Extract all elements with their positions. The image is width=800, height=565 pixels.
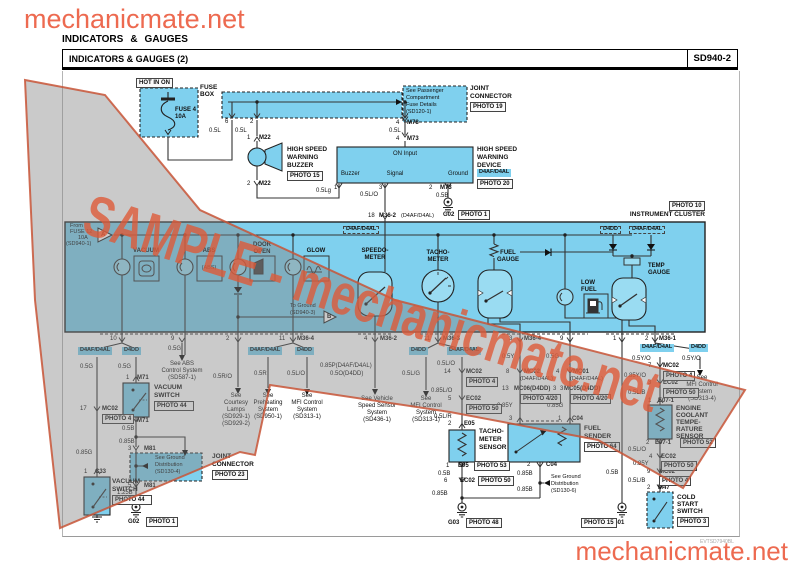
diagram-label: 0.5G — [80, 364, 93, 370]
diagram-label: (ABS) — [202, 266, 217, 272]
diagram-label: M36-2 — [379, 213, 396, 219]
diagram-label: Buzzer — [341, 171, 360, 177]
diagram-label: 8 — [506, 369, 509, 375]
variant-chip: D4AF/D4AL — [248, 347, 282, 355]
diagram-label: BOX — [200, 92, 214, 99]
diagram-label: VACUUM — [133, 248, 159, 254]
diagram-label: 0.5L — [235, 128, 247, 134]
diagram-label: BUZZER — [287, 163, 313, 170]
diagram-label: METER — [365, 255, 386, 261]
diagram-label: CONNECTOR — [212, 462, 254, 469]
diagram-label: 3 — [509, 336, 512, 342]
diagram-label: SWITCH — [677, 509, 703, 516]
diagram-label: M81 — [144, 483, 156, 489]
diagram-label: INSTRUMENT CLUSTER — [630, 212, 705, 219]
diagram-label: See — [697, 375, 708, 381]
diagram-label: M22 — [259, 181, 271, 187]
diagram-label: To Ground — [290, 304, 316, 310]
diagram-label: EC02 — [661, 454, 676, 460]
diagram-label: 9 — [560, 336, 563, 342]
diagram-label: 2 — [250, 119, 253, 125]
diagram-label: C33 — [95, 469, 106, 475]
diagram-label: SPEEDO- — [361, 248, 388, 254]
diagram-label: (SD940-1) — [66, 242, 91, 248]
diagram-label: 3 — [560, 386, 563, 392]
diagram-label: (D4AF/D4AL) — [401, 214, 434, 220]
diagram-label: GAUGE — [497, 257, 519, 263]
diagram-label: (SD950-1) — [254, 414, 282, 420]
diagram-label: 4 — [396, 136, 399, 142]
diagram-label: 3 — [379, 185, 382, 191]
diagram-label: 2 — [247, 181, 250, 187]
diagram-label: ON Input — [393, 151, 417, 157]
photo-ref: PHOTO 53 — [474, 461, 510, 471]
diagram-label: Preheating — [253, 400, 282, 406]
diagram-label: See Passenger — [406, 89, 444, 95]
diagram-label: 0.85Y/O — [624, 373, 646, 379]
diagram-label: 18 — [368, 213, 375, 219]
diagram-label: 0.85G — [76, 450, 92, 456]
diagram-label: WARNING — [477, 155, 508, 162]
diagram-label: SWITCH — [154, 393, 180, 400]
diagram-label: M71 — [137, 375, 149, 381]
diagram-label: 0.5L/R — [434, 414, 452, 420]
diagram-label: 0.5G — [118, 364, 131, 370]
diagram-label: 0.85B — [432, 491, 448, 497]
variant-chip: D4AF/D4AL — [343, 226, 379, 234]
photo-ref: PHOTO 4 — [466, 377, 498, 387]
diagram-label: 0.5B — [436, 193, 448, 199]
diagram-labels: FUSE 410AFUSEBOX620.5L0.5L1M222M22HIGH S… — [0, 0, 800, 565]
diagram-label: Speed Sensor — [358, 403, 396, 409]
diagram-label: FUEL — [584, 426, 601, 433]
diagram-label: 11 — [424, 336, 430, 342]
diagram-label: 0.85B — [517, 471, 533, 477]
diagram-label: B — [327, 314, 331, 320]
diagram-label: 0.5L — [209, 128, 221, 134]
diagram-label: FUEL — [581, 287, 597, 293]
diagram-label: (SD587-1) — [168, 375, 196, 381]
diagram-label: EC02 — [466, 396, 481, 402]
diagram-label: (SD130-4) — [155, 470, 180, 476]
diagram-label: OPEN — [253, 249, 270, 255]
diagram-label: 9 — [171, 336, 174, 342]
photo-ref: PHOTO 4 — [659, 476, 691, 486]
diagram-label: TACHO- — [427, 250, 450, 256]
diagram-label: 0.5G — [546, 354, 559, 360]
diagram-label: 0.85P(D4AF/D4AL) — [320, 363, 372, 369]
diagram-label: JOINT — [212, 454, 231, 461]
variant-chip: D4AF/D4AL — [477, 169, 511, 177]
diagram-label: 4 — [556, 369, 559, 375]
photo-ref: PHOTO 4 — [663, 371, 695, 381]
diagram-label: 6 — [225, 119, 228, 125]
photo-ref: PHOTO 4/20 — [570, 394, 611, 404]
photo-ref: PHOTO 44 — [112, 495, 152, 505]
diagram-label: MC02 — [663, 363, 679, 369]
variant-chip: D4AF/D4AL — [640, 344, 674, 352]
diagram-label: See — [421, 396, 432, 402]
photo-ref: PHOTO 4 — [102, 414, 134, 424]
diagram-label: 9 — [647, 469, 650, 475]
diagram-label: EC02 — [663, 380, 678, 386]
diagram-label: 1 — [613, 336, 616, 342]
diagram-label: 0.5O(D4DD) — [330, 371, 363, 377]
diagram-label: SENSOR — [479, 445, 506, 452]
diagram-label: 0.5Y — [502, 354, 514, 360]
diagram-label: See — [263, 393, 274, 399]
diagram-label: 1 — [247, 135, 250, 141]
site-logo-footer: mechanicmate.net — [576, 536, 788, 565]
diagram-label: (SD940-3) — [290, 311, 315, 317]
diagram-label: MC06(D4DD) — [514, 386, 550, 392]
diagram-label: 0.5Y/O — [632, 356, 651, 362]
diagram-label: 0.5B — [438, 471, 450, 477]
photo-ref: PHOTO 44 — [154, 401, 194, 411]
variant-chip: D4DD — [689, 344, 708, 352]
diagram-label: METER — [479, 437, 502, 444]
diagram-label: 4 — [396, 120, 399, 126]
diagram-label: M36-4 — [297, 336, 314, 342]
diagram-label: 4 — [649, 454, 652, 460]
diagram-label: FUEL — [500, 250, 516, 256]
diagram-label: GLOW — [307, 248, 326, 254]
diagram-label: System — [416, 410, 436, 416]
diagram-label: Control System — [161, 368, 202, 374]
variant-chip: D4DD — [122, 347, 141, 355]
diagram-label: C04 — [546, 462, 557, 468]
diagram-label: M47 — [658, 485, 670, 491]
diagram-label: 0.5L/G — [402, 371, 420, 377]
diagram-label: M78 — [407, 120, 419, 126]
diagram-label: 5 — [448, 396, 451, 402]
diagram-label: M36-1 — [659, 336, 676, 342]
diagram-label: See — [302, 393, 313, 399]
diagram-label: 0.5L/B — [628, 390, 645, 396]
diagram-label: 1 — [446, 463, 449, 469]
photo-ref: PHOTO 48 — [466, 518, 502, 528]
diagram-label: 1 — [84, 469, 87, 475]
diagram-label: 0.5Y/O — [682, 356, 701, 362]
diagram-label: 2 — [645, 336, 648, 342]
diagram-label: 5 — [128, 483, 131, 489]
diagram-label: (SD120-1) — [406, 110, 431, 116]
photo-ref: PHOTO 20 — [477, 179, 513, 189]
diagram-label: Fuse Details — [406, 103, 437, 109]
diagram-label: VACUUM — [112, 479, 140, 486]
diagram-label: M71 — [137, 418, 149, 424]
diagram-label: Distribution — [155, 463, 183, 469]
diagram-label: (D4AF/D4AL) — [570, 377, 603, 383]
diagram-label: 0.5L/B — [628, 478, 645, 484]
diagram-label: 10A — [175, 114, 186, 120]
photo-ref: PHOTO 50 — [466, 404, 502, 414]
variant-chip: D4AF/D4AL — [447, 347, 481, 355]
diagram-label: (SD313-1) — [293, 414, 321, 420]
diagram-label: 2 — [527, 462, 530, 468]
diagram-label: See ABS — [170, 361, 194, 367]
photo-ref: PHOTO 1 — [458, 210, 490, 220]
diagram-label: 2 — [429, 185, 432, 191]
diagram-label: 0.5R — [254, 371, 267, 377]
diagram-label: E07-1 — [655, 440, 671, 446]
diagram-label: M36-3 — [443, 336, 460, 342]
diagram-label: (SD929-1) — [222, 414, 250, 420]
diagram-label: G02 — [128, 519, 139, 525]
photo-ref: PHOTO 64 — [584, 442, 620, 452]
diagram-label: 3 — [553, 386, 556, 392]
photo-ref: PHOTO 10 — [669, 201, 705, 211]
diagram-label: 0.5L — [389, 128, 401, 134]
diagram-label: See Ground — [551, 475, 581, 481]
diagram-label: 10 — [110, 336, 117, 342]
variant-chip: D4DD — [600, 226, 621, 234]
diagram-label: G02 — [443, 212, 454, 218]
diagram-label: M81 — [144, 446, 156, 452]
diagram-label: 0.85B — [119, 439, 135, 445]
photo-ref: PHOTO 50 — [663, 388, 699, 398]
diagram-label: Signal — [387, 171, 404, 177]
hot-in-on-label: HOT IN ON — [136, 78, 173, 88]
diagram-label: Distribution — [551, 482, 579, 488]
photo-ref: PHOTO 23 — [212, 470, 248, 480]
diagram-label: 2 — [646, 440, 649, 446]
diagram-label: 2 — [647, 485, 650, 491]
diagram-label: Ground — [448, 171, 468, 177]
diagram-label: MC02 — [466, 369, 482, 375]
diagram-label: VACUUM — [154, 385, 182, 392]
diagram-label: E05 — [464, 421, 475, 427]
diagram-label: E07-1 — [658, 398, 674, 404]
diagram-label: 6 — [444, 478, 447, 484]
diagram-label: M73 — [440, 185, 452, 191]
diagram-label: TEMP — [648, 263, 665, 269]
diagram-label: 0.5Lg — [316, 188, 331, 194]
diagram-label: E05 — [458, 463, 469, 469]
photo-ref: PHOTO 4/20 — [520, 394, 561, 404]
diagram-label: 1 — [648, 398, 651, 404]
diagram-label: Lamps — [227, 407, 245, 413]
diagram-label: CONNECTOR — [470, 94, 512, 101]
photo-ref: PHOTO 15 — [581, 518, 617, 528]
diagram-label: 0.5L/O — [360, 192, 378, 198]
diagram-label: M73 — [407, 136, 419, 142]
diagram-label: JOINT — [470, 86, 489, 93]
diagram-label: 1 — [126, 375, 129, 381]
diagram-label: See Vehicle — [361, 396, 393, 402]
diagram-label: GAUGE — [648, 270, 670, 276]
diagram-label: See Ground — [155, 456, 185, 462]
diagram-label: Courtesy — [224, 400, 248, 406]
diagram-label: 0.85G — [547, 403, 563, 409]
diagram-label: 0.85Y — [633, 461, 649, 467]
diagram-label: MC02 — [102, 406, 118, 412]
diagram-label: 0.5L/O — [287, 371, 305, 377]
diagram-label: MFI Control — [291, 400, 322, 406]
diagram-label: 4 — [364, 336, 367, 342]
diagram-label: (SD436-1) — [363, 417, 391, 423]
diagram-label: Compartment — [406, 96, 439, 102]
diagram-label: SENDER — [584, 434, 611, 441]
diagram-label: 3 — [648, 380, 651, 386]
diagram-label: DOOR — [253, 242, 271, 248]
diagram-label: 0.5G — [168, 346, 181, 352]
diagram-label: MC05(D4DD) — [564, 386, 600, 392]
diagram-label: 0.5B — [122, 426, 134, 432]
diagram-label: 1 — [558, 416, 561, 422]
photo-ref: PHOTO 3 — [677, 517, 709, 527]
diagram-label: A — [101, 232, 105, 238]
diagram-label: See — [231, 393, 242, 399]
diagram-label: M36-4 — [524, 336, 541, 342]
photo-ref: PHOTO 52 — [680, 438, 716, 448]
diagram-label: (SD929-2) — [222, 421, 250, 427]
diagram-label: 17 — [80, 406, 87, 412]
diagram-label: 0.85L/O — [431, 388, 452, 394]
diagram-label: EC02 — [460, 478, 475, 484]
diagram-label: 0.5R/O — [213, 374, 232, 380]
diagram-label: MFI Control — [410, 403, 441, 409]
photo-ref: PHOTO 19 — [470, 102, 506, 112]
diagram-label: System — [258, 407, 278, 413]
diagram-label: M22 — [259, 135, 271, 141]
diagram-label: System — [297, 407, 317, 413]
diagram-label: ABS — [203, 248, 216, 254]
diagram-label: 3 — [128, 446, 131, 452]
diagram-label: C04 — [572, 416, 583, 422]
diagram-label: 0.5B — [606, 470, 618, 476]
diagram-label: WARNING — [287, 155, 318, 162]
variant-chip: D4AF/D4AL — [629, 226, 665, 234]
diagram-label: (D4AF/D4AL) — [520, 377, 553, 383]
diagram-label: 0.85B — [517, 487, 533, 493]
diagram-label: (SD130-6) — [551, 489, 576, 495]
diagram-label: MC02 — [524, 369, 540, 375]
diagram-label: 3 — [509, 416, 512, 422]
diagram-label: 0.5L/O — [437, 361, 455, 367]
diagram-label: 0.5L/O — [628, 447, 646, 453]
diagram-label: TACHO- — [479, 429, 504, 436]
variant-chip: D4DD — [409, 347, 428, 355]
diagram-label: MC01 — [573, 369, 589, 375]
diagram-label: FUSE 4 — [175, 107, 196, 113]
diagram-label: METER — [428, 257, 449, 263]
diagram-label: HIGH SPEED — [287, 147, 327, 154]
diagram-label: HIGH SPEED — [477, 147, 517, 154]
page: mechanicmate.net INDICATORS&GAUGES INDIC… — [0, 0, 800, 565]
diagram-label: LOW — [581, 280, 595, 286]
variant-chip: D4DD — [295, 347, 314, 355]
photo-ref: PHOTO 1 — [146, 517, 178, 527]
variant-chip: D4AF/D4AL — [78, 347, 112, 355]
diagram-label: System — [367, 410, 387, 416]
diagram-label: 11 — [279, 336, 285, 342]
diagram-label: 14 — [444, 369, 451, 375]
diagram-label: 13 — [502, 386, 509, 392]
diagram-label: 2 — [448, 421, 451, 427]
photo-ref: PHOTO 50 — [478, 476, 514, 486]
diagram-label: 1 — [334, 185, 337, 191]
photo-ref: PHOTO 15 — [287, 171, 323, 181]
photo-ref: PHOTO 50 — [661, 461, 697, 471]
diagram-label: G03 — [448, 520, 459, 526]
diagram-label: 7 — [648, 363, 651, 369]
diagram-label: M36-2 — [380, 336, 397, 342]
diagram-label: 2 — [226, 336, 229, 342]
